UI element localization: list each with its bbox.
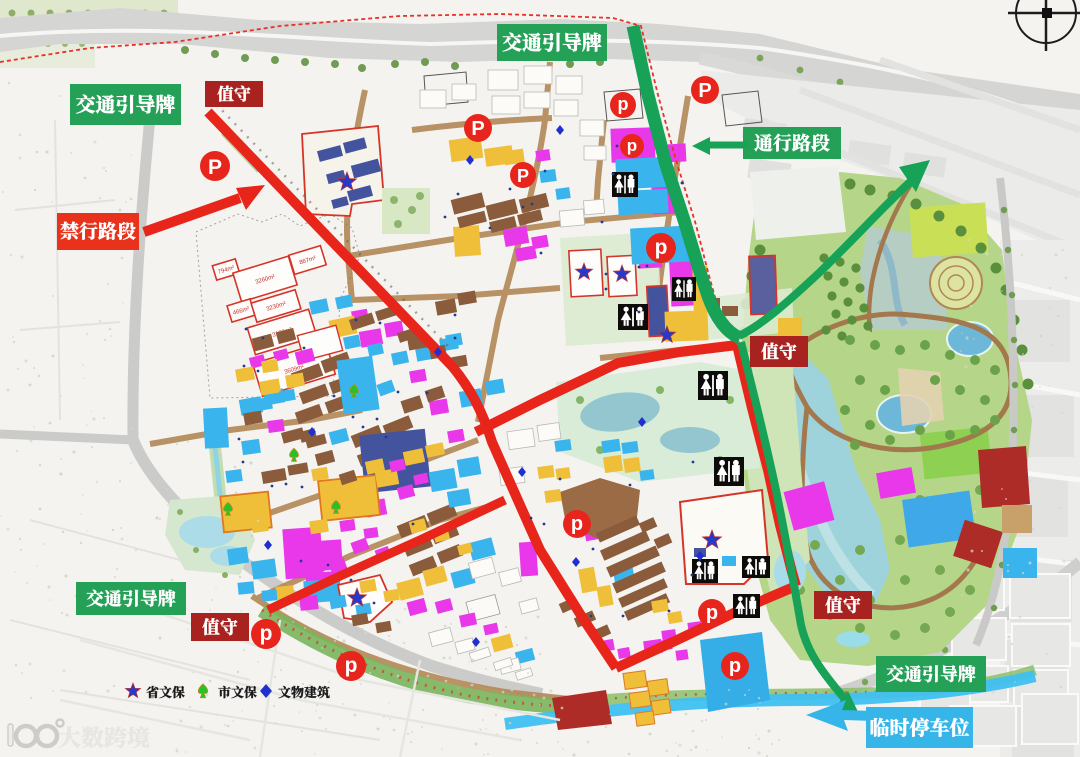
svg-text:p: p [655, 236, 668, 259]
svg-text:p: p [345, 654, 358, 677]
svg-text:p: p [260, 622, 273, 645]
svg-text:p: p [571, 513, 583, 535]
svg-text:P: P [698, 80, 711, 102]
svg-text:p: p [706, 602, 718, 624]
svg-text:P: P [208, 156, 222, 179]
svg-text:p: p [729, 655, 741, 677]
svg-text:p: p [627, 136, 637, 155]
svg-text:p: p [618, 94, 629, 114]
svg-text:P: P [517, 166, 529, 186]
svg-text:P: P [471, 118, 484, 140]
